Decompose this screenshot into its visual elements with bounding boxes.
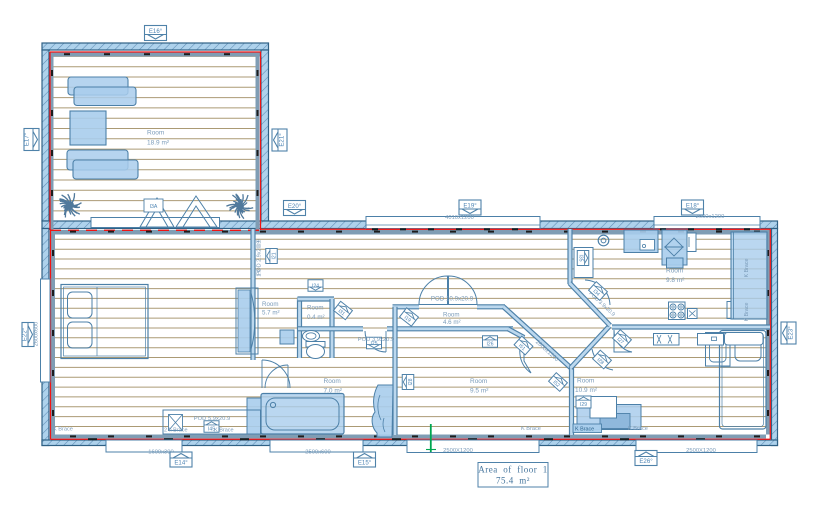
svg-text:Room: Room bbox=[147, 130, 164, 137]
svg-text:Room: Room bbox=[470, 378, 487, 385]
svg-text:E21°: E21° bbox=[279, 133, 286, 147]
svg-text:Room: Room bbox=[443, 312, 460, 319]
svg-text:4.6 m²: 4.6 m² bbox=[443, 319, 461, 326]
svg-text:I3A: I3A bbox=[150, 204, 158, 210]
svg-text:POD 3.9x20.9: POD 3.9x20.9 bbox=[358, 337, 394, 343]
svg-text:E16°: E16° bbox=[149, 28, 163, 35]
svg-text:75.4 m²: 75.4 m² bbox=[496, 476, 530, 486]
svg-text:E23°: E23° bbox=[788, 326, 795, 340]
svg-text:2500X1200: 2500X1200 bbox=[686, 448, 716, 454]
svg-text:5.7 m²: 5.7 m² bbox=[262, 310, 280, 317]
svg-text:Room: Room bbox=[666, 268, 683, 275]
svg-text:2500x600: 2500x600 bbox=[305, 450, 330, 456]
svg-text:K Brace: K Brace bbox=[521, 426, 541, 432]
svg-text:E20°: E20° bbox=[288, 203, 302, 210]
svg-text:1.0: 1.0 bbox=[257, 269, 263, 276]
svg-text:2 h Brace: 2 h Brace bbox=[164, 428, 188, 434]
svg-text:4010x1200: 4010x1200 bbox=[445, 215, 474, 221]
svg-text:I28: I28 bbox=[408, 378, 414, 385]
svg-text:K Brace: K Brace bbox=[744, 259, 750, 278]
svg-text:K Brace: K Brace bbox=[744, 303, 750, 322]
svg-text:9.5 m²: 9.5 m² bbox=[470, 388, 489, 395]
svg-text:POD 10.9x20.9: POD 10.9x20.9 bbox=[431, 296, 474, 303]
svg-text:2600x600: 2600x600 bbox=[34, 322, 40, 347]
svg-text:K Brace: K Brace bbox=[628, 426, 648, 432]
svg-text:I29: I29 bbox=[580, 402, 587, 408]
svg-text:Room: Room bbox=[262, 301, 279, 308]
svg-text:E19°: E19° bbox=[463, 203, 477, 210]
svg-text:Room: Room bbox=[577, 378, 594, 385]
svg-text:I35: I35 bbox=[577, 255, 583, 262]
svg-text:K Brace: K Brace bbox=[53, 427, 73, 433]
svg-text:POD 5.9x20.9: POD 5.9x20.9 bbox=[194, 416, 230, 422]
svg-text:2500X1200: 2500X1200 bbox=[443, 448, 473, 454]
svg-text:E15°: E15° bbox=[358, 460, 372, 467]
svg-text:10.9 m²: 10.9 m² bbox=[575, 387, 598, 394]
svg-text:Room: Room bbox=[324, 378, 341, 385]
svg-text:7.0 m²: 7.0 m² bbox=[324, 388, 343, 395]
svg-text:I26: I26 bbox=[487, 341, 494, 347]
svg-text:Room: Room bbox=[307, 305, 324, 312]
svg-text:E26°: E26° bbox=[639, 458, 653, 465]
svg-text:I21: I21 bbox=[271, 252, 277, 259]
svg-text:K Brace: K Brace bbox=[214, 428, 234, 434]
svg-text:I24: I24 bbox=[312, 284, 319, 290]
svg-text:E14°: E14° bbox=[174, 460, 188, 467]
svg-text:0.9: 0.9 bbox=[257, 239, 263, 246]
svg-text:9.8 m²: 9.8 m² bbox=[666, 277, 685, 284]
svg-text:E17°: E17° bbox=[24, 132, 31, 146]
svg-text:18.9 m²: 18.9 m² bbox=[147, 140, 170, 147]
svg-text:K Brace: K Brace bbox=[575, 427, 594, 433]
svg-text:E22°: E22° bbox=[22, 327, 29, 341]
svg-text:0.4 m²: 0.4 m² bbox=[307, 314, 325, 321]
svg-text:Area of floor 1: Area of floor 1 bbox=[478, 465, 547, 475]
svg-text:E18°: E18° bbox=[686, 203, 700, 210]
